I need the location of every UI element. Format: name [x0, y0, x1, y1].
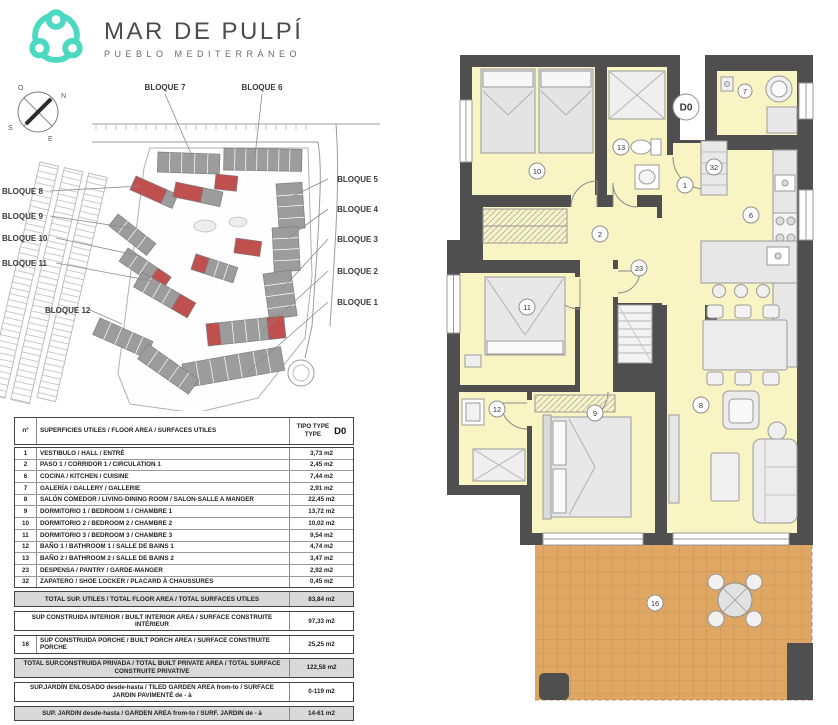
svg-text:2: 2 [598, 230, 602, 239]
areas-table: nº SUPERFICIES UTILES / FLOOR AREA / SUR… [14, 417, 354, 725]
cell-value: 22,45 m2 [289, 495, 353, 506]
header-type: TIPO TYPE TYPE D0 [289, 418, 353, 444]
stairs-icon [618, 305, 652, 363]
header-no: nº [15, 418, 37, 444]
compass-n: N [61, 93, 66, 100]
room-label: 13 [613, 139, 629, 155]
terrace [535, 545, 813, 700]
svg-text:9: 9 [593, 409, 597, 418]
bloque-label: BLOQUE 11 [2, 259, 47, 268]
svg-text:32: 32 [710, 163, 718, 172]
summary-row: TOTAL SUP.CONSTRUIDA PRIVADA / TOTAL BUI… [14, 658, 354, 678]
cell-value: 97,33 m2 [289, 612, 353, 630]
brand-title: MAR DE PULPÍ [104, 18, 303, 46]
compass-icon: N E S O [8, 85, 66, 143]
cell-no: 23 [15, 565, 37, 576]
site-plan: N E S O [0, 76, 380, 411]
room-label: 32 [706, 159, 722, 175]
cell-value: 2,45 m2 [289, 460, 353, 471]
cell-desc: SUP. JARDIN desde-hasta / GARDEN AREA fr… [15, 707, 289, 720]
cell-desc: COCINA / KITCHEN / CUISINE [37, 471, 289, 482]
side-table-icon [768, 422, 786, 440]
room-label: 1 [677, 177, 693, 193]
table-row: 6COCINA / KITCHEN / CUISINE7,44 m2 [15, 470, 353, 482]
bloque-leader-line [165, 94, 192, 156]
terrace-wall-block [787, 643, 813, 700]
brand-logo-icon [24, 6, 88, 70]
cell-desc: VESTIBULO / HALL / ENTRÉ [37, 448, 289, 459]
svg-text:6: 6 [749, 211, 753, 220]
cell-desc: DESPENSA / PANTRY / GARDE-MANGER [37, 565, 289, 576]
room-label: D0 [673, 94, 699, 120]
cell-no: 1 [15, 448, 37, 459]
cell-no: 11 [15, 530, 37, 541]
summary-row: SUP.JARDÍN ENLOSADO desde-hasta / TILED … [14, 682, 354, 702]
table-row: 23DESPENSA / PANTRY / GARDE-MANGER2,92 m… [15, 564, 353, 576]
room-label: 8 [693, 397, 709, 413]
header-type-line2: TYPE [305, 431, 321, 439]
wardrobe-icon [535, 395, 615, 412]
compass-e: E [48, 136, 53, 143]
table-row: 1VESTIBULO / HALL / ENTRÉ3,73 m2 [15, 448, 353, 459]
plan-sheet: MAR DE PULPÍ PUEBLO MEDITERRÁNEO N E S O [0, 0, 838, 706]
table-row: 8SALÓN COMEDOR / LIVING-DINING ROOM / SA… [15, 494, 353, 506]
areas-table-summary: TOTAL SUP. UTILES / TOTAL FLOOR AREA / T… [14, 591, 354, 720]
table-row: 12BAÑO 1 / BATHROOM 1 / SALLE DE BAINS 1… [15, 541, 353, 553]
bloque-label: BLOQUE 5 [337, 175, 378, 184]
cell-value: 9,54 m2 [289, 530, 353, 541]
cell-desc: TOTAL SUP.CONSTRUIDA PRIVADA / TOTAL BUI… [15, 659, 289, 677]
room-label: 6 [743, 207, 759, 223]
table-row: 2PASO 1 / CORRIDOR 1 / CIRCULATION 12,45… [15, 459, 353, 471]
summary-row: 16SUP CONSTRUIDA PORCHE / BUILT PORCH AR… [14, 635, 354, 653]
svg-text:12: 12 [493, 405, 501, 414]
cell-no: 10 [15, 518, 37, 529]
svg-text:23: 23 [635, 264, 643, 273]
cell-value: 7,44 m2 [289, 471, 353, 482]
room-label: 11 [519, 299, 535, 315]
cell-no: 7 [15, 483, 37, 494]
table-row: 11DORMITORIO 3 / BEDROOM 3 / CHAMBRE 39,… [15, 529, 353, 541]
bloque-label: BLOQUE 10 [2, 234, 48, 243]
cell-value: 2,92 m2 [289, 565, 353, 576]
header-desc: SUPERFICIES UTILES / FLOOR AREA / SURFAC… [37, 418, 289, 444]
table-row: 13BAÑO 2 / BATHROOM 2 / SALLE DE BAINS 2… [15, 552, 353, 564]
cell-no: 12 [15, 542, 37, 553]
bloque-label: BLOQUE 6 [242, 83, 283, 92]
cell-desc: SUP.JARDÍN ENLOSADO desde-hasta / TILED … [15, 683, 289, 701]
areas-table-header: nº SUPERFICIES UTILES / FLOOR AREA / SUR… [14, 417, 354, 445]
cell-no: 32 [15, 577, 37, 588]
cell-value: 3,47 m2 [289, 553, 353, 564]
cell-desc: DORMITORIO 2 / BEDROOM 2 / CHAMBRE 2 [37, 518, 289, 529]
cell-desc: DORMITORIO 1 / BEDROOM 1 / CHAMBRE 1 [37, 506, 289, 517]
cell-desc: PASO 1 / CORRIDOR 1 / CIRCULATION 1 [37, 460, 289, 471]
cell-no: 6 [15, 471, 37, 482]
table-row: 10DORMITORIO 2 / BEDROOM 2 / CHAMBRE 210… [15, 517, 353, 529]
room-label: 10 [529, 163, 545, 179]
bloque-label: BLOQUE 1 [337, 298, 378, 307]
bloque-label: BLOQUE 8 [2, 187, 43, 196]
header-type-line1: TIPO TYPE [297, 423, 329, 431]
table-row: 32ZAPATERO / SHOE LOCKER / PLACARD À CHA… [15, 576, 353, 588]
cell-no: 16 [15, 636, 37, 652]
compass-s: S [8, 125, 13, 132]
svg-text:1: 1 [683, 181, 687, 190]
summary-row: SUP CONSTRUIDA INTERIOR / BUILT INTERIOR… [14, 611, 354, 631]
cell-no: 9 [15, 506, 37, 517]
cell-desc: BAÑO 1 / BATHROOM 1 / SALLE DE BAINS 1 [37, 542, 289, 553]
cell-desc: SUP CONSTRUIDA PORCHE / BUILT PORCH AREA… [37, 636, 289, 652]
table-row: 7GALERÍA / GALLERY / GALLERIE2,91 m2 [15, 482, 353, 494]
cell-desc: DORMITORIO 3 / BEDROOM 3 / CHAMBRE 3 [37, 530, 289, 541]
svg-text:11: 11 [523, 303, 531, 312]
cell-no: 8 [15, 495, 37, 506]
table-row: 9DORMITORIO 1 / BEDROOM 1 / CHAMBRE 113,… [15, 505, 353, 517]
bloque-label: BLOQUE 9 [2, 212, 43, 221]
svg-text:8: 8 [699, 401, 703, 410]
summary-row: TOTAL SUP. UTILES / TOTAL FLOOR AREA / T… [14, 591, 354, 607]
brand-header: MAR DE PULPÍ PUEBLO MEDITERRÁNEO [24, 6, 303, 70]
bloque-label: BLOQUE 3 [337, 235, 378, 244]
room-label: 16 [647, 595, 663, 611]
cell-desc: BAÑO 2 / BATHROOM 2 / SALLE DE BAINS 2 [37, 553, 289, 564]
terrace-pillar [539, 673, 569, 700]
svg-text:7: 7 [743, 87, 747, 96]
cell-value: 4,74 m2 [289, 542, 353, 553]
cell-value: 83,84 m2 [289, 592, 353, 606]
svg-text:13: 13 [617, 143, 625, 152]
bloque-label: BLOQUE 7 [145, 83, 186, 92]
floor-plan: D010137321261123129816 [435, 55, 838, 706]
cell-value: 0-119 m2 [289, 683, 353, 701]
coffee-table-icon [711, 453, 739, 501]
room-label: 12 [489, 401, 505, 417]
cell-value: 10,02 m2 [289, 518, 353, 529]
room-label: 7 [738, 84, 752, 98]
room-label: 23 [631, 260, 647, 276]
cell-desc: TOTAL SUP. UTILES / TOTAL FLOOR AREA / T… [15, 592, 289, 606]
svg-text:16: 16 [651, 599, 659, 608]
summary-row: SUP. JARDIN desde-hasta / GARDEN AREA fr… [14, 706, 354, 721]
bloque-label: BLOQUE 4 [337, 205, 378, 214]
cell-value: 3,73 m2 [289, 448, 353, 459]
tv-cabinet [669, 415, 679, 503]
sofa-icon [753, 439, 797, 523]
cell-value: 14-61 m2 [289, 707, 353, 720]
svg-text:10: 10 [533, 167, 541, 176]
cell-desc: GALERÍA / GALLERY / GALLERIE [37, 483, 289, 494]
cell-value: 13,72 m2 [289, 506, 353, 517]
cell-value: 2,91 m2 [289, 483, 353, 494]
cell-desc: ZAPATERO / SHOE LOCKER / PLACARD À CHAUS… [37, 577, 289, 588]
bloque-label: BLOQUE 2 [337, 267, 378, 276]
unit-type-code: D0 [334, 426, 346, 437]
cell-value: 0,45 m2 [289, 577, 353, 588]
areas-table-body: 1VESTIBULO / HALL / ENTRÉ3,73 m22PASO 1 … [14, 447, 354, 588]
cell-value: 122,58 m2 [289, 659, 353, 677]
cell-desc: SUP CONSTRUIDA INTERIOR / BUILT INTERIOR… [15, 612, 289, 630]
bloque-label: BLOQUE 12 [45, 306, 91, 315]
brand-subtitle: PUEBLO MEDITERRÁNEO [104, 49, 303, 59]
cell-value: 25,25 m2 [289, 636, 353, 652]
cell-no: 13 [15, 553, 37, 564]
dining-set [703, 305, 787, 385]
compass-o: O [18, 85, 24, 92]
svg-text:D0: D0 [680, 103, 693, 114]
room-label: 9 [587, 405, 603, 421]
cell-no: 2 [15, 460, 37, 471]
room-label: 2 [592, 226, 608, 242]
cell-desc: SALÓN COMEDOR / LIVING-DINING ROOM / SAL… [37, 495, 289, 506]
parking-rows [0, 162, 107, 409]
